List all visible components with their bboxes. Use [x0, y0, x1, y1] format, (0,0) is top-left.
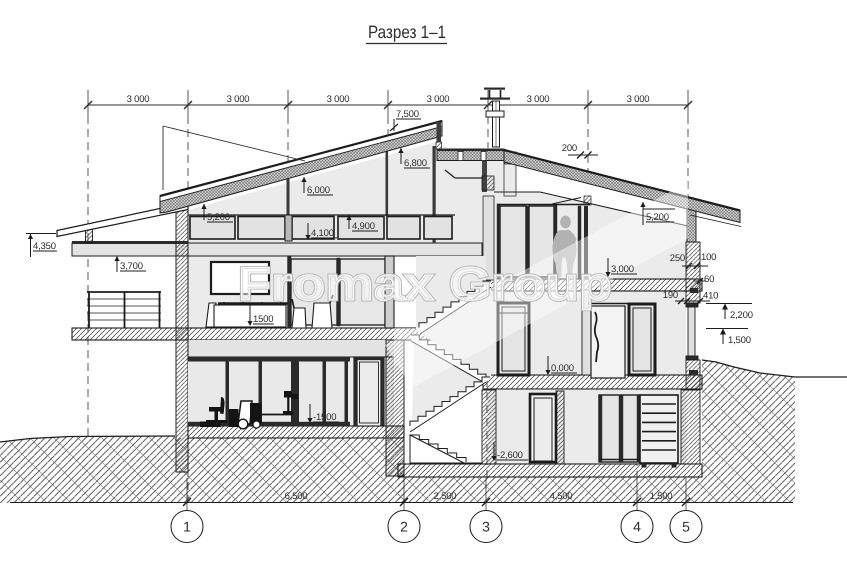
- svg-text:4,350: 4,350: [33, 241, 56, 252]
- svg-text:2,200: 2,200: [730, 310, 753, 321]
- svg-text:3 000: 3 000: [527, 94, 550, 105]
- svg-text:6,800: 6,800: [404, 158, 427, 169]
- svg-text:4: 4: [633, 519, 641, 535]
- svg-text:5,200: 5,200: [646, 212, 669, 223]
- svg-text:410: 410: [703, 291, 718, 302]
- svg-text:Разрез 1–1: Разрез 1–1: [368, 22, 446, 42]
- svg-text:3 000: 3 000: [127, 94, 150, 105]
- svg-text:60: 60: [704, 274, 714, 285]
- svg-text:190: 190: [663, 290, 678, 301]
- svg-text:1,500: 1,500: [650, 491, 673, 502]
- svg-text:3: 3: [482, 519, 490, 535]
- svg-text:5: 5: [682, 519, 690, 535]
- svg-text:Fromax Group: Fromax Group: [238, 257, 612, 310]
- svg-text:7,500: 7,500: [396, 109, 419, 120]
- svg-text:-2,600: -2,600: [497, 450, 523, 461]
- svg-text:3 000: 3 000: [327, 94, 350, 105]
- svg-text:-1500: -1500: [313, 412, 336, 423]
- svg-text:6,000: 6,000: [307, 185, 330, 196]
- svg-text:3,000: 3,000: [611, 264, 634, 275]
- svg-text:3 000: 3 000: [227, 94, 250, 105]
- svg-text:4,500: 4,500: [550, 491, 573, 502]
- svg-text:250: 250: [670, 253, 685, 264]
- svg-text:4,100: 4,100: [311, 228, 334, 239]
- svg-text:100: 100: [701, 252, 716, 263]
- svg-text:3 000: 3 000: [427, 94, 450, 105]
- svg-text:200: 200: [562, 143, 577, 154]
- svg-text:3,700: 3,700: [120, 261, 143, 272]
- svg-text:0,000: 0,000: [551, 363, 574, 374]
- svg-text:1: 1: [183, 519, 191, 535]
- svg-text:1500: 1500: [253, 314, 273, 325]
- svg-text:1,500: 1,500: [728, 335, 751, 346]
- svg-text:5,200: 5,200: [207, 212, 230, 223]
- svg-text:6,500: 6,500: [285, 491, 308, 502]
- svg-text:4,900: 4,900: [352, 221, 375, 232]
- svg-text:2: 2: [400, 519, 408, 535]
- svg-text:3 000: 3 000: [627, 94, 650, 105]
- svg-text:2,500: 2,500: [434, 491, 457, 502]
